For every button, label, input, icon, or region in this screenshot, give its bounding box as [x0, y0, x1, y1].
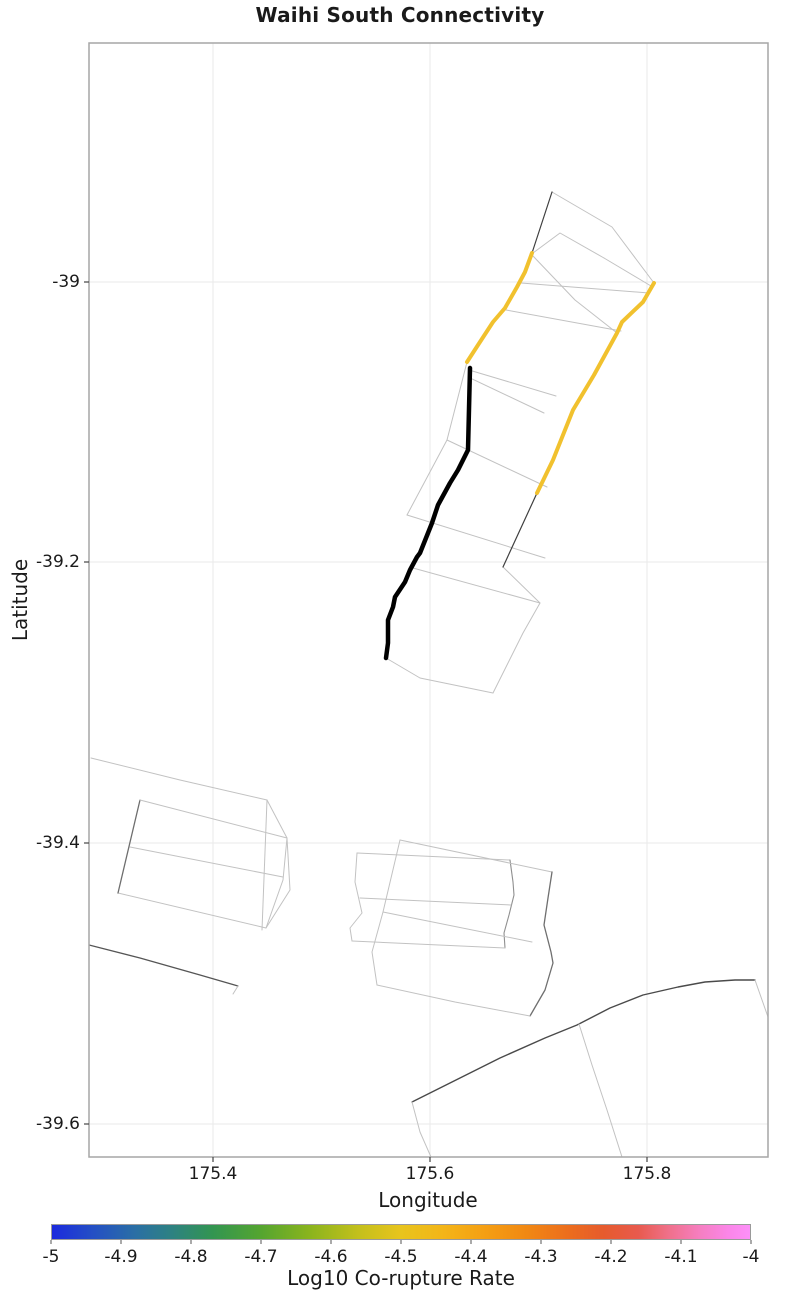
- fault-outline-sw-sliver: [266, 838, 290, 928]
- fault-outline-sw-tail: [233, 986, 238, 994]
- fault-outline-west-edge: [447, 362, 467, 440]
- y-tick-label: -39.4: [0, 833, 80, 853]
- x-axis-label: Longitude: [378, 1188, 477, 1212]
- fault-outline-se-tail: [412, 1102, 431, 1157]
- x-tick-label: 175.4: [189, 1164, 238, 1184]
- colorbar-tick-label: -4.9: [104, 1247, 137, 1267]
- target-fault-trace-black: [386, 368, 470, 658]
- fault-outline-sw-right: [262, 800, 267, 930]
- corupture-trace-yellow-west: [467, 253, 532, 362]
- fault-section-divider: [521, 283, 649, 293]
- colorbar-tick-label: -4.4: [454, 1247, 487, 1267]
- corupture-trace-yellow-east: [537, 283, 654, 493]
- fault-outline-sw-top: [91, 758, 267, 800]
- fault-outline-sw-east: [266, 838, 287, 928]
- fault-trace-sw-long-dark: [89, 945, 238, 986]
- fault-outline-mid2-bottom: [377, 985, 530, 1016]
- colorbar-tick-label: -5: [43, 1247, 60, 1267]
- fault-section-divider: [469, 370, 556, 396]
- y-axis-label: Latitude: [8, 559, 32, 641]
- fault-outline-inner-top: [533, 233, 604, 258]
- fault-section-divider: [468, 377, 544, 413]
- page-title: Waihi South Connectivity: [0, 3, 800, 27]
- y-tick-label: -39: [0, 272, 80, 292]
- figure: Waihi South Connectivity -39-39.2-39.4-3…: [0, 0, 800, 1305]
- y-tick-label: -39.6: [0, 1114, 80, 1134]
- fault-trace-sw-west-dark: [118, 800, 140, 893]
- fault-outline-se-branch: [579, 1024, 622, 1157]
- colorbar-gradient: [51, 1224, 751, 1240]
- fault-outline-se: [755, 980, 768, 1017]
- fault-section-divider: [506, 310, 621, 331]
- fault-outline-mid-top: [357, 853, 510, 860]
- x-tick-label: 175.8: [623, 1164, 672, 1184]
- colorbar-tick-label: -4.2: [594, 1247, 627, 1267]
- fault-outline-sw: [267, 800, 287, 838]
- fault-trace-se-curve-dark: [412, 980, 755, 1102]
- colorbar-tick-label: -4.5: [384, 1247, 417, 1267]
- fault-trace-dark-south: [503, 493, 537, 567]
- fault-trace-mid-east: [504, 860, 514, 948]
- colorbar-tick-label: -4.8: [174, 1247, 207, 1267]
- colorbar-tick-label: -4.6: [314, 1247, 347, 1267]
- colorbar-tick-label: -4.1: [664, 1247, 697, 1267]
- fault-outline-mid-west: [350, 853, 362, 941]
- fault-section-divider: [413, 568, 540, 603]
- fault-section-divider: [383, 912, 532, 942]
- fault-trace-mid2-east-dark: [530, 872, 553, 1016]
- x-tick-label: 175.6: [406, 1164, 455, 1184]
- fault-outline-sw-bottom: [118, 893, 266, 928]
- fault-outline-inner-diagonal: [533, 256, 617, 333]
- colorbar-tick-label: -4.3: [524, 1247, 557, 1267]
- colorbar-tick-label: -4: [743, 1247, 760, 1267]
- colorbar-tick-label: -4.7: [244, 1247, 277, 1267]
- fault-trace-dark-north: [532, 192, 552, 253]
- fault-outline-south-edge: [386, 658, 493, 693]
- fault-section-divider: [130, 847, 283, 877]
- fault-section-divider: [360, 898, 511, 905]
- map-svg: [0, 0, 800, 1305]
- colorbar-label: Log10 Co-rupture Rate: [287, 1266, 515, 1290]
- fault-outline-southeast-edge: [493, 603, 540, 693]
